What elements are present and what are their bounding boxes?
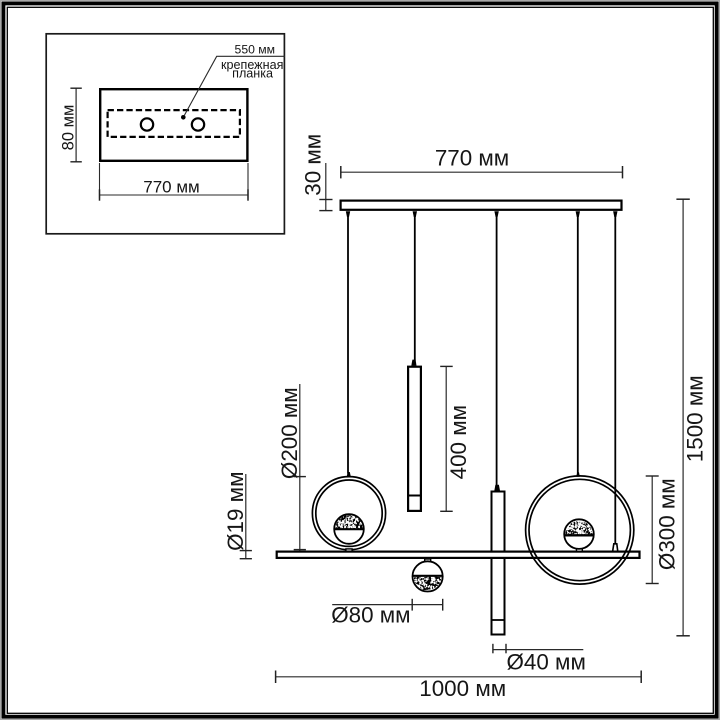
svg-text:Ø200 мм: Ø200 мм — [277, 387, 302, 479]
svg-text:770 мм: 770 мм — [435, 146, 509, 171]
svg-text:770 мм: 770 мм — [143, 178, 199, 197]
svg-text:Ø80 мм: Ø80 мм — [331, 603, 410, 628]
svg-text:Ø40 мм: Ø40 мм — [507, 650, 586, 675]
svg-text:планка: планка — [232, 67, 273, 81]
svg-text:550 мм: 550 мм — [235, 42, 275, 56]
svg-text:1000 мм: 1000 мм — [419, 676, 506, 701]
svg-text:30 мм: 30 мм — [300, 134, 325, 196]
svg-text:400 мм: 400 мм — [446, 405, 471, 479]
svg-text:Ø300 мм: Ø300 мм — [654, 478, 679, 570]
svg-text:Ø19 мм: Ø19 мм — [223, 472, 248, 551]
svg-text:1500 мм: 1500 мм — [683, 375, 708, 462]
svg-text:80 мм: 80 мм — [59, 105, 77, 151]
